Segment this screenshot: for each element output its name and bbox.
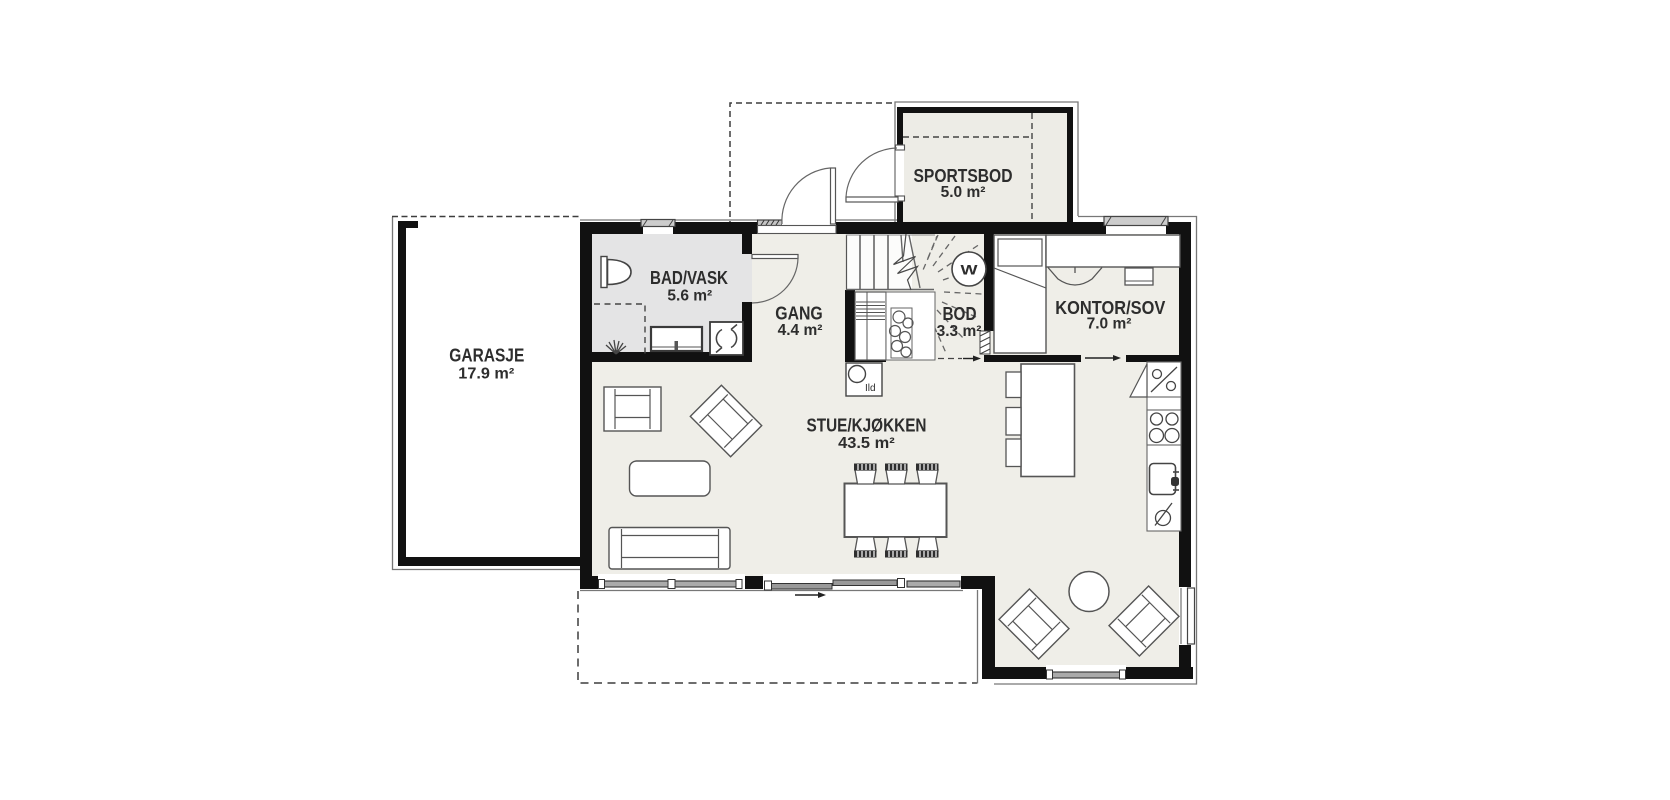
svg-text:GARASJE: GARASJE [449, 345, 524, 366]
svg-text:STUE/KJØKKEN: STUE/KJØKKEN [807, 414, 927, 435]
svg-text:7.0 m²: 7.0 m² [1087, 316, 1132, 333]
svg-text:43.5 m²: 43.5 m² [838, 435, 895, 452]
svg-text:SPORTSBOD: SPORTSBOD [914, 165, 1013, 186]
svg-text:5.6 m²: 5.6 m² [667, 288, 712, 305]
svg-text:BOD: BOD [943, 303, 977, 324]
svg-text:Ild: Ild [865, 383, 876, 394]
svg-text:3.3 m²: 3.3 m² [937, 323, 982, 340]
svg-text:4.4 m²: 4.4 m² [778, 322, 823, 339]
svg-text:5.0 m²: 5.0 m² [941, 184, 986, 201]
svg-text:17.9 m²: 17.9 m² [458, 366, 514, 383]
svg-text:GANG: GANG [775, 303, 823, 324]
svg-text:W: W [961, 263, 978, 278]
svg-text:BAD/VASK: BAD/VASK [650, 267, 729, 288]
